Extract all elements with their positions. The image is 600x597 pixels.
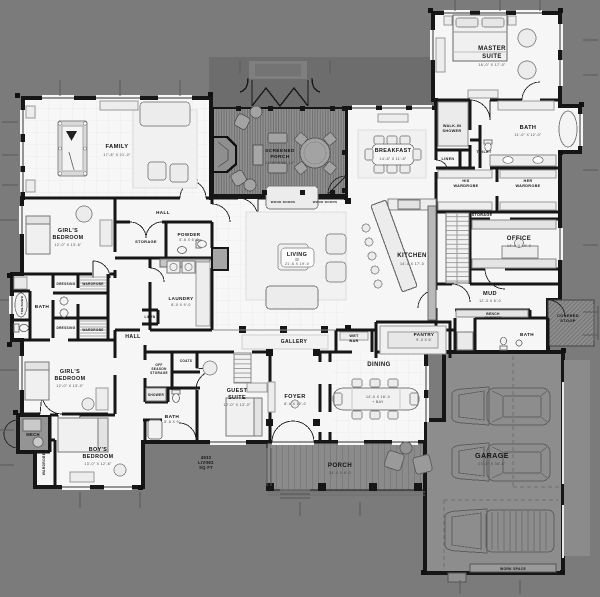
svg-text:KITCHEN: KITCHEN — [397, 253, 426, 259]
svg-text:BEDROOM: BEDROOM — [53, 235, 84, 241]
svg-text:MUD: MUD — [483, 291, 497, 297]
svg-text:SHOWER: SHOWER — [148, 393, 165, 397]
svg-text:14'-0 X 17'-0: 14'-0 X 17'-0 — [400, 262, 424, 266]
svg-text:HALL: HALL — [156, 210, 170, 215]
svg-text:12'-0" X 13'-0": 12'-0" X 13'-0" — [56, 384, 84, 388]
svg-text:11'-0" X 12'-0": 11'-0" X 12'-0" — [515, 133, 542, 137]
svg-text:12'-0" X 13'-6": 12'-0" X 13'-6" — [54, 243, 82, 247]
svg-text:WARDROBE: WARDROBE — [454, 184, 479, 188]
svg-text:BATH: BATH — [520, 332, 534, 337]
svg-text:PANTRY: PANTRY — [414, 332, 435, 337]
svg-text:GARAGE: GARAGE — [475, 451, 509, 460]
svg-text:LAUNDRY: LAUNDRY — [168, 296, 193, 301]
svg-text:LINEN: LINEN — [144, 315, 155, 319]
svg-text:5'-6 X 9': 5'-6 X 9' — [164, 420, 180, 424]
svg-text:CUBBIES: CUBBIES — [484, 316, 502, 320]
svg-text:14'-8" X 11'-8": 14'-8" X 11'-8" — [380, 157, 407, 161]
svg-text:21'-0" X 12'-10": 21'-0" X 12'-10" — [265, 161, 295, 165]
svg-text:34'-0 X 8'-0: 34'-0 X 8'-0 — [329, 471, 351, 475]
svg-text:LIVING: LIVING — [287, 252, 307, 258]
svg-text:WARDROBE: WARDROBE — [82, 328, 103, 332]
svg-text:8'-0 X 12'-0: 8'-0 X 12'-0 — [284, 402, 306, 406]
svg-text:BREAKFAST: BREAKFAST — [375, 148, 412, 154]
svg-text:13'-0" X 12'-6": 13'-0" X 12'-6" — [84, 462, 112, 466]
svg-text:WET: WET — [349, 334, 359, 338]
svg-text:SHOWER: SHOWER — [443, 129, 462, 133]
svg-text:WORK SPACE: WORK SPACE — [500, 567, 527, 571]
svg-text:8'-0 X 9'-0: 8'-0 X 9'-0 — [171, 303, 190, 307]
svg-text:17'-8" X 21'-0": 17'-8" X 21'-0" — [103, 153, 131, 157]
svg-text:FOYER: FOYER — [284, 394, 305, 400]
svg-text:BEDROOM: BEDROOM — [83, 454, 114, 460]
svg-text:MASTER: MASTER — [478, 46, 506, 52]
svg-text:PORCH: PORCH — [270, 154, 289, 160]
svg-text:DRESSING: DRESSING — [56, 326, 75, 330]
svg-text:WARDROBE: WARDROBE — [42, 452, 46, 475]
svg-text:BEDROOM: BEDROOM — [55, 376, 86, 382]
svg-text:SCREENED: SCREENED — [265, 148, 295, 154]
svg-text:WOOD DOORS: WOOD DOORS — [271, 200, 296, 204]
svg-text:WALK-IN: WALK-IN — [443, 124, 461, 128]
svg-text:+ BAY: + BAY — [372, 400, 384, 404]
svg-text:16'-0" X 17'-0": 16'-0" X 17'-0" — [478, 63, 506, 67]
svg-text:DRESSING: DRESSING — [56, 282, 75, 286]
svg-text:COATS: COATS — [180, 359, 192, 363]
svg-text:STORAGE: STORAGE — [472, 213, 493, 217]
svg-text:14'-0 X 16'-0: 14'-0 X 16'-0 — [366, 395, 390, 399]
svg-text:TUB/SHWR: TUB/SHWR — [20, 295, 24, 314]
svg-text:BAR: BAR — [349, 339, 358, 343]
svg-text:TOILET: TOILET — [476, 150, 492, 154]
svg-text:HER: HER — [524, 179, 533, 183]
svg-text:SUITE: SUITE — [228, 395, 246, 401]
svg-text:STORAGE: STORAGE — [150, 371, 168, 375]
svg-text:MECH: MECH — [26, 432, 40, 437]
svg-text:FAMILY: FAMILY — [105, 144, 128, 150]
svg-text:WOOD DOORS: WOOD DOORS — [313, 200, 338, 204]
svg-text:14'-0 X 10'-0: 14'-0 X 10'-0 — [507, 244, 531, 248]
svg-text:SQ FT: SQ FT — [199, 465, 213, 470]
svg-text:WARDROBE: WARDROBE — [82, 282, 103, 286]
svg-text:WARDROBE: WARDROBE — [516, 184, 541, 188]
svg-text:STORAGE: STORAGE — [135, 239, 157, 244]
svg-text:OFFICE: OFFICE — [507, 236, 531, 242]
svg-text:21'-6 X 19'-0: 21'-6 X 19'-0 — [285, 262, 309, 266]
svg-text:BATH: BATH — [35, 304, 50, 310]
svg-text:BATH: BATH — [520, 125, 537, 131]
svg-text:GALLERY: GALLERY — [281, 339, 308, 345]
svg-text:HIS: HIS — [462, 179, 469, 183]
svg-text:PORCH: PORCH — [328, 462, 352, 469]
svg-text:BOY'S: BOY'S — [89, 447, 108, 453]
svg-text:DINING: DINING — [367, 362, 390, 368]
svg-text:9'-0 X 6': 9'-0 X 6' — [416, 338, 432, 342]
svg-text:5'-6 X 6'-0: 5'-6 X 6'-0 — [179, 238, 198, 242]
svg-text:12'-0" X 13'-0": 12'-0" X 13'-0" — [223, 403, 251, 407]
svg-text:GUEST: GUEST — [227, 388, 248, 394]
svg-text:12'-0 X 6'-0: 12'-0 X 6'-0 — [479, 299, 501, 303]
svg-text:SUITE: SUITE — [482, 54, 502, 60]
svg-text:LINEN: LINEN — [442, 157, 455, 161]
svg-text:STOOP: STOOP — [560, 318, 575, 323]
svg-text:GIRL'S: GIRL'S — [58, 228, 78, 234]
svg-text:GIRL'S: GIRL'S — [60, 369, 80, 375]
svg-text:POWDER: POWDER — [177, 232, 200, 237]
svg-text:23'-8" X 36'-8": 23'-8" X 36'-8" — [478, 462, 506, 466]
svg-text:HALL: HALL — [125, 334, 141, 340]
